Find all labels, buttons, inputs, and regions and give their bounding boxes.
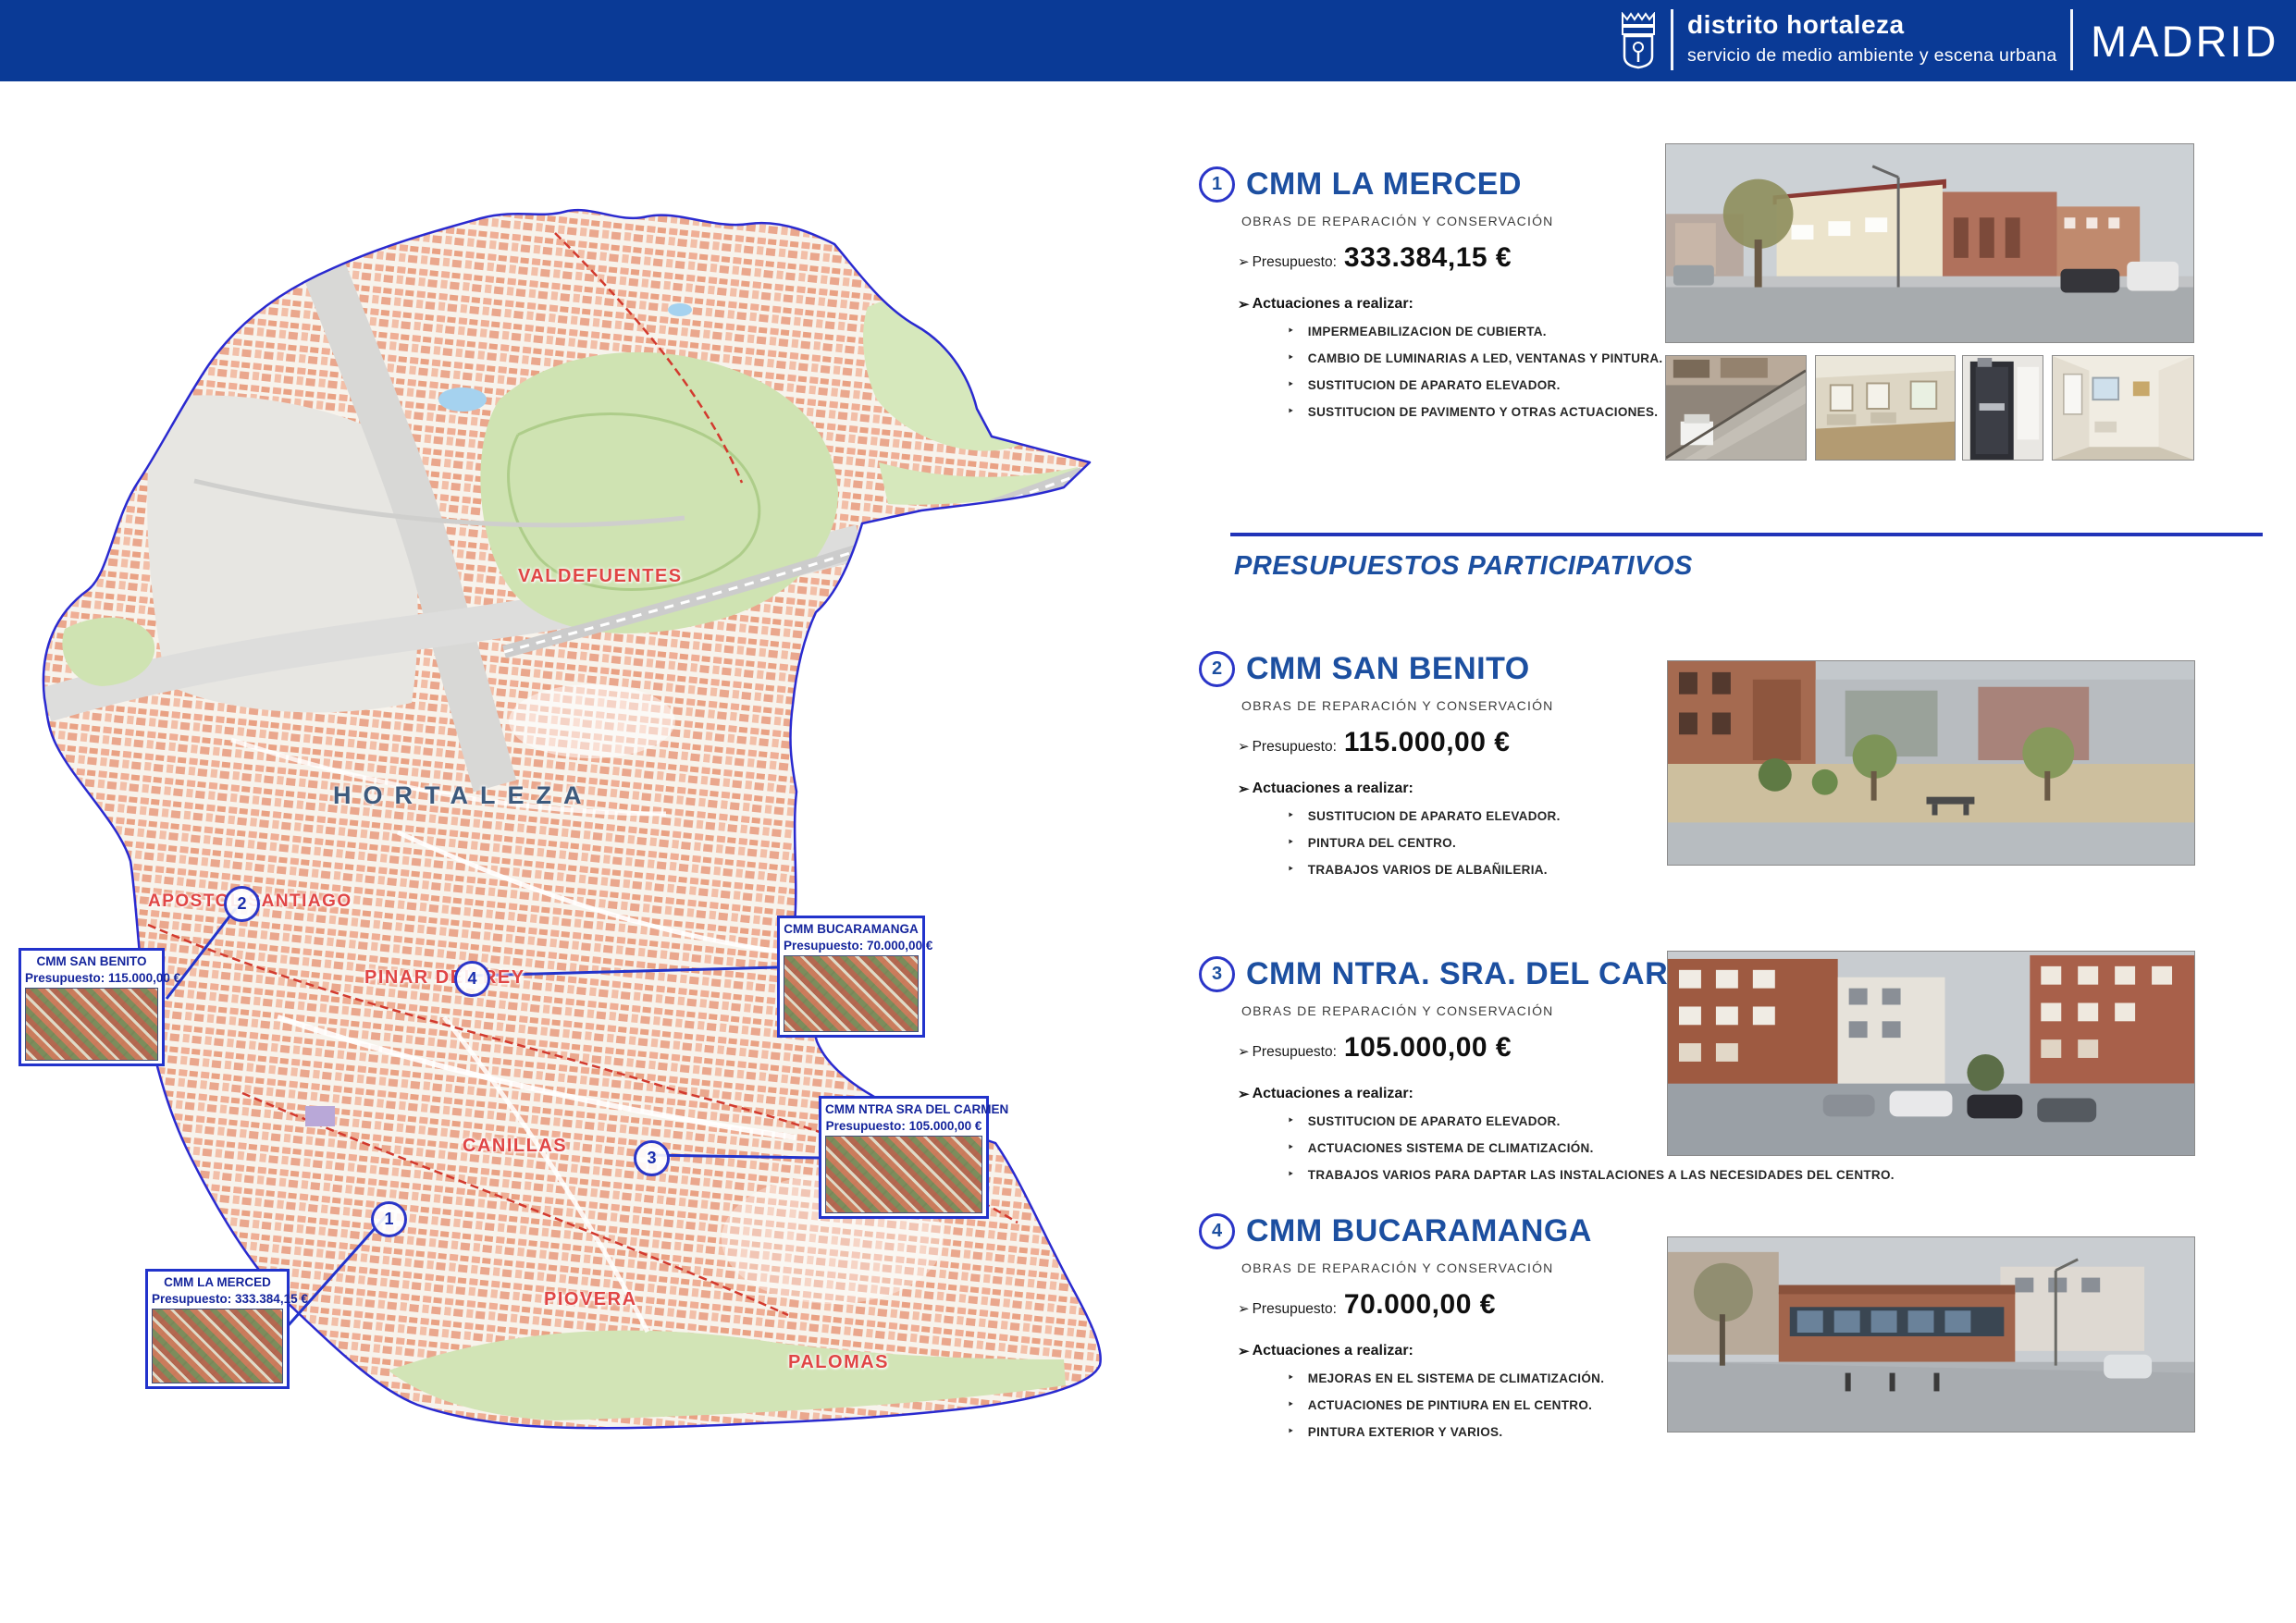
section-la-merced: 1 CMM LA MERCED OBRAS DE REPARACIÓN Y CO… (1199, 166, 1634, 420)
header-divider (1671, 9, 1673, 70)
budget-label: Presupuesto: (1253, 254, 1337, 271)
header-bar: distrito hortaleza servicio de medio amb… (0, 0, 2296, 81)
section-divider-rule (1230, 533, 2263, 536)
district-boundary (43, 210, 1101, 1428)
actions-label: Actuaciones a realizar: (1253, 781, 1413, 797)
map-label-hortaleza: HORTALEZA (333, 781, 593, 810)
budget-label: Presupuesto: (1253, 739, 1337, 756)
triangle-bullet-icon: ‣ (1288, 1167, 1294, 1183)
brand-wordmark: MADRID (2091, 16, 2278, 67)
callout-title: CMM SAN BENITO (25, 953, 158, 970)
arrow-bullet-icon: ➢ (1238, 1086, 1250, 1102)
actions-label-row: ➢ Actuaciones a realizar: (1238, 1086, 1634, 1102)
actions-label-row: ➢ Actuaciones a realizar: (1238, 296, 1634, 313)
section-title: CMM BUCARAMANGA (1246, 1213, 1592, 1249)
callout-title: CMM NTRA SRA DEL CARMEN (825, 1101, 982, 1118)
map-label-piovera: PIOVERA (544, 1289, 637, 1310)
callout-budget: Presupuesto: 333.384,15 € (152, 1291, 283, 1308)
action-item: ‣SUSTITUCION DE APARATO ELEVADOR. (1288, 377, 1634, 393)
photo-la-merced-corridor (2052, 355, 2194, 461)
section-bucaramanga: 4 CMM BUCARAMANGA OBRAS DE REPARACIÓN Y … (1199, 1213, 1634, 1440)
budget-row: ➢ Presupuesto: 115.000,00 € (1238, 727, 1634, 758)
actions-list: ‣IMPERMEABILIZACION DE CUBIERTA. ‣CAMBIO… (1288, 324, 1634, 420)
section-number-badge: 3 (1199, 956, 1235, 992)
actions-list: ‣SUSTITUCION DE APARATO ELEVADOR. ‣PINTU… (1288, 808, 1634, 878)
map-marker-3: 3 (634, 1140, 670, 1176)
map-marker-1: 1 (371, 1201, 407, 1237)
header-subtitle: servicio de medio ambiente y escena urba… (1687, 45, 2057, 67)
photo-carmen (1667, 951, 2195, 1156)
triangle-bullet-icon: ‣ (1288, 808, 1294, 824)
action-item: ‣SUSTITUCION DE PAVIMENTO Y OTRAS ACTUAC… (1288, 404, 1634, 420)
photo-bucaramanga (1667, 1236, 2195, 1432)
aerial-photo-la-merced (152, 1309, 283, 1383)
poster-page: distrito hortaleza servicio de medio amb… (0, 0, 2296, 1623)
callout-budget: Presupuesto: 105.000,00 € (825, 1118, 982, 1135)
actions-label: Actuaciones a realizar: (1253, 296, 1413, 313)
action-item: ‣ACTUACIONES SISTEMA DE CLIMATIZACIÓN. (1288, 1140, 1634, 1156)
callout-budget: Presupuesto: 115.000,00 € (25, 970, 158, 987)
participative-budgets-heading: PRESUPUESTOS PARTICIPATIVOS (1234, 551, 1693, 582)
triangle-bullet-icon: ‣ (1288, 835, 1294, 851)
budget-row: ➢ Presupuesto: 70.000,00 € (1238, 1289, 1634, 1321)
triangle-bullet-icon: ‣ (1288, 1371, 1294, 1386)
action-item: ‣ACTUACIONES DE PINTIURA EN EL CENTRO. (1288, 1397, 1634, 1413)
arrow-bullet-icon: ➢ (1238, 1043, 1250, 1060)
triangle-bullet-icon: ‣ (1288, 1424, 1294, 1440)
budget-amount: 70.000,00 € (1344, 1289, 1496, 1321)
aerial-photo-san-benito (25, 988, 158, 1061)
triangle-bullet-icon: ‣ (1288, 1140, 1294, 1156)
budget-label: Presupuesto: (1253, 1301, 1337, 1318)
actions-label-row: ➢ Actuaciones a realizar: (1238, 1343, 1634, 1359)
triangle-bullet-icon: ‣ (1288, 862, 1294, 878)
madrid-crest-icon (1619, 12, 1658, 69)
section-title: CMM SAN BENITO (1246, 651, 1530, 687)
map-marker-2: 2 (224, 886, 260, 922)
action-item: ‣MEJORAS EN EL SISTEMA DE CLIMATIZACIÓN. (1288, 1371, 1634, 1386)
budget-row: ➢ Presupuesto: 105.000,00 € (1238, 1032, 1634, 1064)
triangle-bullet-icon: ‣ (1288, 404, 1294, 420)
action-item: ‣CAMBIO DE LUMINARIAS A LED, VENTANAS Y … (1288, 350, 1634, 366)
budget-amount: 105.000,00 € (1344, 1032, 1512, 1064)
callout-bucaramanga: CMM BUCARAMANGA Presupuesto: 70.000,00 € (777, 916, 925, 1038)
aerial-photo-carmen (825, 1136, 982, 1213)
section-title: CMM LA MERCED (1246, 166, 1522, 203)
actions-list: ‣SUSTITUCION DE APARATO ELEVADOR. ‣ACTUA… (1288, 1113, 1634, 1183)
section-number-badge: 1 (1199, 166, 1235, 203)
arrow-bullet-icon: ➢ (1238, 738, 1250, 755)
triangle-bullet-icon: ‣ (1288, 1397, 1294, 1413)
arrow-bullet-icon: ➢ (1238, 1300, 1250, 1317)
works-subtitle: OBRAS DE REPARACIÓN Y CONSERVACIÓN (1241, 214, 1634, 228)
map-label-pinar-del-rey: PINAR DEL REY (364, 967, 525, 989)
callout-budget: Presupuesto: 70.000,00 € (784, 938, 919, 954)
triangle-bullet-icon: ‣ (1288, 350, 1294, 366)
budget-amount: 333.384,15 € (1344, 242, 1512, 274)
arrow-bullet-icon: ➢ (1238, 296, 1250, 313)
triangle-bullet-icon: ‣ (1288, 377, 1294, 393)
section-ntra-sra-del-carmen: 3 CMM NTRA. SRA. DEL CARMEN OBRAS DE REP… (1199, 956, 1634, 1183)
section-san-benito: 2 CMM SAN BENITO OBRAS DE REPARACIÓN Y C… (1199, 651, 1634, 878)
callout-la-merced: CMM LA MERCED Presupuesto: 333.384,15 € (145, 1269, 290, 1389)
action-item: ‣TRABAJOS VARIOS DE ALBAÑILERIA. (1288, 862, 1634, 878)
budget-row: ➢ Presupuesto: 333.384,15 € (1238, 242, 1634, 274)
actions-label: Actuaciones a realizar: (1253, 1343, 1413, 1359)
photo-la-merced-roof (1665, 355, 1807, 461)
actions-list: ‣MEJORAS EN EL SISTEMA DE CLIMATIZACIÓN.… (1288, 1371, 1634, 1440)
callout-title: CMM LA MERCED (152, 1274, 283, 1291)
map-label-valdefuentes: VALDEFUENTES (518, 566, 683, 587)
photo-la-merced-interior-room (1815, 355, 1956, 461)
callout-title: CMM BUCARAMANGA (784, 921, 919, 938)
map-marker-4: 4 (454, 961, 490, 997)
photo-la-merced-elevator (1962, 355, 2043, 461)
arrow-bullet-icon: ➢ (1238, 781, 1250, 797)
actions-label: Actuaciones a realizar: (1253, 1086, 1413, 1102)
photo-san-benito (1667, 660, 2195, 866)
triangle-bullet-icon: ‣ (1288, 1113, 1294, 1129)
map-label-canillas: CANILLAS (463, 1136, 567, 1157)
map-label-palomas: PALOMAS (788, 1352, 889, 1373)
aerial-photo-bucaramanga (784, 955, 919, 1032)
action-item: ‣SUSTITUCION DE APARATO ELEVADOR. (1288, 808, 1634, 824)
budget-amount: 115.000,00 € (1344, 727, 1511, 758)
header-title: distrito hortaleza (1687, 10, 1905, 40)
arrow-bullet-icon: ➢ (1238, 253, 1250, 270)
budget-label: Presupuesto: (1253, 1044, 1337, 1061)
action-item: ‣TRABAJOS VARIOS PARA DAPTAR LAS INSTALA… (1288, 1167, 1634, 1183)
section-number-badge: 4 (1199, 1213, 1235, 1249)
action-item: ‣PINTURA EXTERIOR Y VARIOS. (1288, 1424, 1634, 1440)
works-subtitle: OBRAS DE REPARACIÓN Y CONSERVACIÓN (1241, 1260, 1634, 1275)
action-item: ‣IMPERMEABILIZACION DE CUBIERTA. (1288, 324, 1634, 339)
section-title: CMM NTRA. SRA. DEL CARMEN (1246, 956, 1739, 992)
action-item: ‣PINTURA DEL CENTRO. (1288, 835, 1634, 851)
section-number-badge: 2 (1199, 651, 1235, 687)
callout-san-benito: CMM SAN BENITO Presupuesto: 115.000,00 € (19, 948, 165, 1066)
works-subtitle: OBRAS DE REPARACIÓN Y CONSERVACIÓN (1241, 698, 1634, 713)
action-item: ‣SUSTITUCION DE APARATO ELEVADOR. (1288, 1113, 1634, 1129)
triangle-bullet-icon: ‣ (1288, 324, 1294, 339)
brand-divider (2070, 9, 2073, 70)
callout-ntra-sra-del-carmen: CMM NTRA SRA DEL CARMEN Presupuesto: 105… (819, 1096, 989, 1219)
actions-label-row: ➢ Actuaciones a realizar: (1238, 781, 1634, 797)
photo-la-merced-exterior (1665, 143, 2194, 343)
arrow-bullet-icon: ➢ (1238, 1343, 1250, 1359)
works-subtitle: OBRAS DE REPARACIÓN Y CONSERVACIÓN (1241, 1003, 1634, 1018)
